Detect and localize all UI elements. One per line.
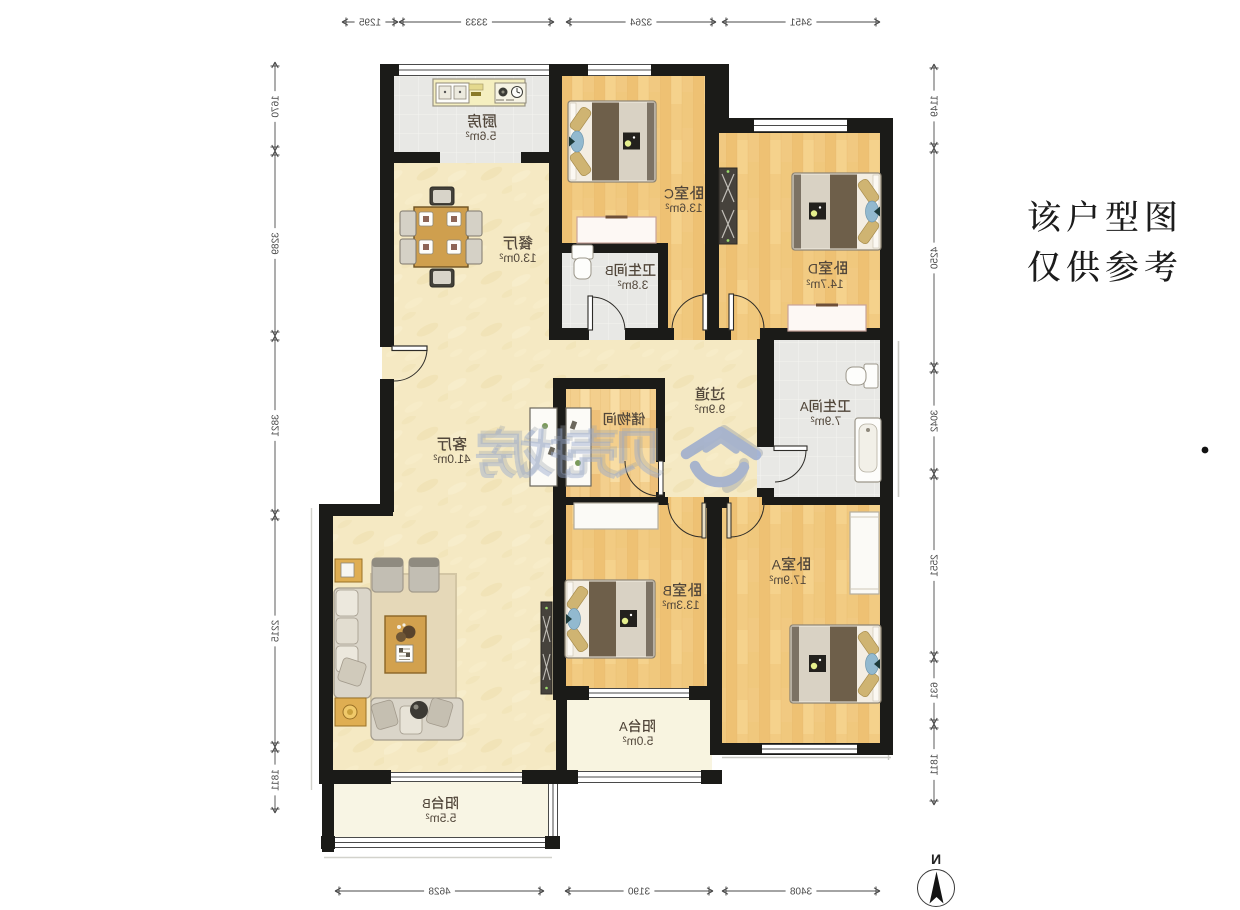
svg-text:5.0m²: 5.0m² bbox=[623, 734, 654, 748]
svg-text:1295: 1295 bbox=[358, 17, 381, 28]
svg-text:1149: 1149 bbox=[929, 95, 940, 117]
svg-text:13.6m²: 13.6m² bbox=[665, 201, 702, 215]
svg-text:4628: 4628 bbox=[428, 886, 451, 897]
svg-text:3333: 3333 bbox=[465, 17, 488, 28]
svg-text:B: B bbox=[605, 263, 614, 278]
svg-text:1811: 1811 bbox=[270, 769, 281, 791]
svg-text:C: C bbox=[664, 186, 674, 202]
svg-text:2551: 2551 bbox=[929, 554, 940, 577]
svg-text:3408: 3408 bbox=[789, 886, 812, 897]
svg-text:3042: 3042 bbox=[929, 410, 940, 433]
svg-text:3190: 3190 bbox=[627, 886, 650, 897]
svg-text:17.9m²: 17.9m² bbox=[769, 573, 806, 587]
svg-text:13.3m²: 13.3m² bbox=[662, 598, 699, 612]
svg-text:A: A bbox=[800, 399, 809, 414]
svg-text:3264: 3264 bbox=[629, 17, 652, 28]
svg-text:631: 631 bbox=[929, 682, 940, 699]
svg-text:A: A bbox=[771, 557, 781, 573]
svg-text:5.5m²: 5.5m² bbox=[426, 811, 457, 825]
svg-text:3821: 3821 bbox=[270, 414, 281, 437]
svg-text:13.0m²: 13.0m² bbox=[499, 251, 536, 265]
svg-text:1811: 1811 bbox=[929, 754, 940, 776]
svg-text:2215: 2215 bbox=[270, 620, 281, 643]
svg-text:14.7m²: 14.7m² bbox=[806, 277, 843, 291]
svg-text:3451: 3451 bbox=[789, 17, 812, 28]
svg-text:3.8m²: 3.8m² bbox=[618, 278, 649, 292]
svg-text:9.9m²: 9.9m² bbox=[695, 402, 726, 416]
svg-text:41.0m²: 41.0m² bbox=[433, 452, 470, 466]
svg-text:4250: 4250 bbox=[929, 247, 940, 270]
svg-text:B: B bbox=[663, 583, 672, 599]
svg-text:N: N bbox=[931, 851, 941, 867]
svg-text:B: B bbox=[422, 796, 431, 811]
svg-text:D: D bbox=[808, 261, 818, 277]
svg-text:7.9m²: 7.9m² bbox=[811, 414, 842, 428]
svg-text:5.6m²: 5.6m² bbox=[466, 129, 497, 143]
svg-text:1670: 1670 bbox=[270, 95, 281, 118]
svg-text:3289: 3289 bbox=[270, 232, 281, 255]
svg-text:A: A bbox=[619, 719, 628, 734]
